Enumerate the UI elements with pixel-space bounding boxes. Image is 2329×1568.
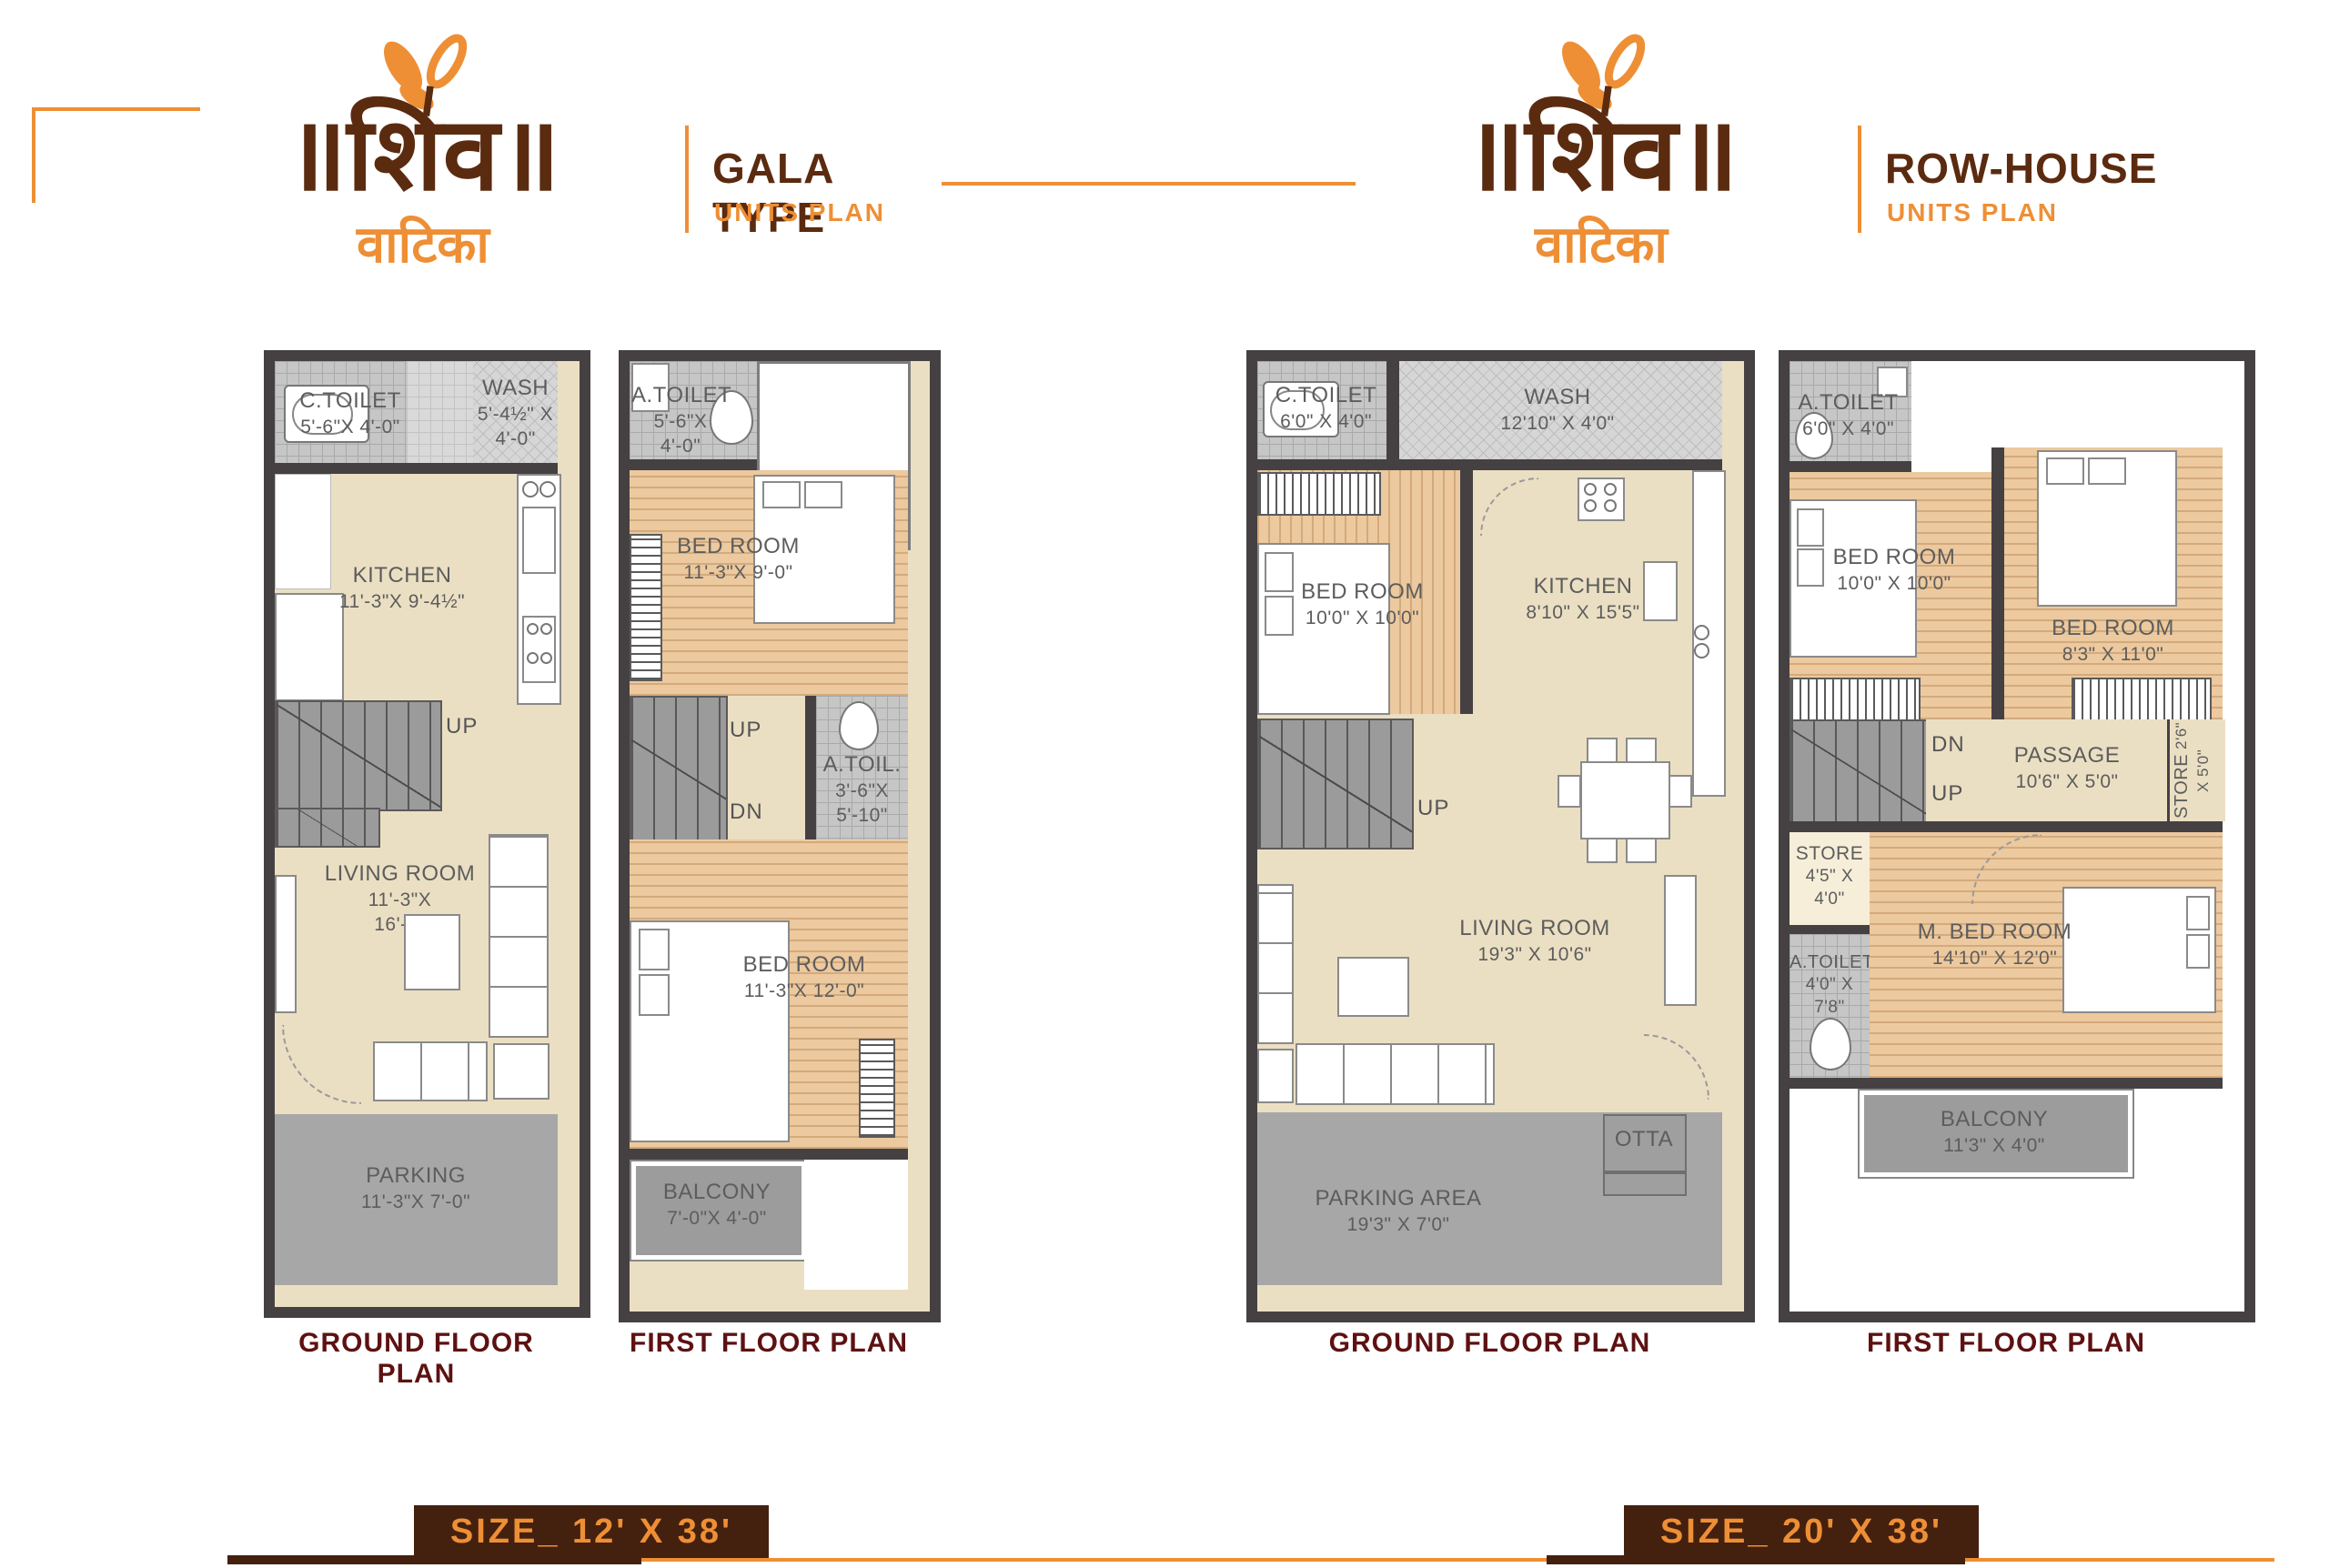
sofa xyxy=(1296,1043,1495,1105)
chair xyxy=(1587,838,1618,863)
chair xyxy=(1626,838,1657,863)
dining-table xyxy=(1580,761,1670,839)
bottom-rule-brown-right xyxy=(1547,1555,1965,1564)
sink-icon xyxy=(539,481,556,498)
burner-icon xyxy=(527,652,539,664)
room-label-m-bedroom: M. BED ROOM 14'10" X 12'0" xyxy=(1897,918,2092,970)
room-label-wash: WASH 12'10" X 4'0" xyxy=(1448,383,1667,436)
room-label-a-toilet: A.TOILET 5'-6"X 4'-0" xyxy=(631,381,730,459)
pillow xyxy=(2046,457,2084,485)
wall xyxy=(630,459,757,470)
wall xyxy=(1790,821,2223,832)
pillow xyxy=(2186,896,2210,930)
rowhouse-ground-caption: GROUND FLOOR PLAN xyxy=(1246,1328,1733,1359)
room-label-bedroom1: BED ROOM 10'0" X 10'0" xyxy=(1808,543,1981,596)
sink-icon xyxy=(522,481,539,498)
wardrobe xyxy=(1790,678,1921,721)
pillow xyxy=(639,974,670,1016)
toilet-icon xyxy=(1810,1018,1851,1070)
chair xyxy=(1558,775,1581,808)
header-divider xyxy=(685,126,689,233)
sofa xyxy=(373,1041,488,1101)
pillow xyxy=(639,929,670,970)
room-label-store: STORE 4'5" X 4'0" xyxy=(1790,841,1870,911)
room-label-bedroom: BED ROOM 10'0" X 10'0" xyxy=(1274,578,1451,630)
room-label-parking: PARKING 11'-3"X 7'-0" xyxy=(316,1161,516,1214)
room-label-a-toilet2: A.TOILET 4'0" X 7'8" xyxy=(1790,950,1870,1019)
corner-bracket-horizontal xyxy=(32,107,200,111)
burner-icon xyxy=(1604,499,1617,512)
rowhouse-first-floor-plan: A.TOILET 6'0" X 4'0" BED ROOM 10'0" X 10… xyxy=(1779,350,2255,1322)
sink-icon xyxy=(1694,643,1709,658)
room-label-balcony: BALCONY 7'-0"X 4'-0" xyxy=(637,1178,797,1231)
gala-first-caption: FIRST FLOOR PLAN xyxy=(619,1328,919,1359)
wall xyxy=(1991,447,2004,719)
burner-icon xyxy=(540,623,552,635)
header-divider xyxy=(1858,126,1861,233)
wall xyxy=(275,463,558,474)
rowhouse-title: ROW-HOUSE xyxy=(1885,144,2157,193)
pillow xyxy=(762,481,801,508)
wall xyxy=(1790,461,1911,472)
room-label-bedroom2: BED ROOM 8'3" X 11'0" xyxy=(2015,614,2211,667)
pillow xyxy=(2088,457,2126,485)
staircase xyxy=(1257,719,1414,849)
stairs-up-label: UP xyxy=(730,718,761,743)
chair xyxy=(1587,738,1618,763)
sofa xyxy=(489,834,549,1038)
size-badge-gala: SIZE_ 12' X 38' xyxy=(414,1505,769,1558)
room-label-store-vertical: STORE 2'6" X 5'0" xyxy=(2170,721,2220,819)
armchair xyxy=(1337,957,1409,1017)
room-label-a-toil: A.TOIL. 3'-6"X 5'-10" xyxy=(817,750,907,829)
bottom-rule-brown-left xyxy=(227,1555,641,1564)
staircase xyxy=(1790,719,1930,825)
burner-icon xyxy=(527,623,539,635)
sink-icon xyxy=(1694,625,1709,640)
burner-icon xyxy=(1584,483,1597,496)
pillow xyxy=(804,481,842,508)
brand-logo-text: ॥शिव॥ xyxy=(273,105,573,206)
pillow xyxy=(1797,508,1824,547)
wall xyxy=(1386,361,1399,459)
rowhouse-subtitle: UNITS PLAN xyxy=(1887,198,2058,227)
rowhouse-first-caption: FIRST FLOOR PLAN xyxy=(1779,1328,2233,1359)
wall xyxy=(1790,925,1870,934)
wardrobe xyxy=(859,1039,895,1138)
wall xyxy=(630,1149,908,1160)
rowhouse-ground-floor-plan: C.TOILET 6'0" X 4'0" WASH 12'10" X 4'0" … xyxy=(1246,350,1755,1322)
otta-label: OTTA xyxy=(1612,1125,1676,1153)
burner-icon xyxy=(1584,499,1597,512)
gala-header: ॥शिव॥ वाटिका GALA TYPE UNITS PLAN xyxy=(273,18,910,291)
armchair xyxy=(404,914,460,990)
side-table xyxy=(493,1043,549,1100)
size-badge-rowhouse: SIZE_ 20' X 38' xyxy=(1624,1505,1979,1558)
room-label-kitchen: KITCHEN 8'10" X 15'5" xyxy=(1492,572,1674,625)
chair xyxy=(1669,775,1692,808)
brand-logo-subtext: वाटिका xyxy=(273,220,573,271)
toilet-icon xyxy=(839,701,879,750)
gala-ground-floor-plan: C.TOILET 5'-6"X 4'-0" WASH 5'-4½" X 4'-0… xyxy=(264,350,590,1318)
burner-icon xyxy=(1604,483,1617,496)
wardrobe xyxy=(1257,472,1381,516)
corner-bracket-vertical xyxy=(32,107,35,203)
room-label-parking: PARKING AREA 19'3" X 7'0" xyxy=(1289,1184,1507,1237)
tv-unit xyxy=(275,875,297,1013)
brand-logo-subtext: वाटिका xyxy=(1451,220,1751,271)
room-label-living: LIVING ROOM 11'-3"X 16'-6" xyxy=(297,859,502,938)
room-label-passage: PASSAGE 10'6" X 5'0" xyxy=(1981,741,2153,794)
room-label-a-toilet: A.TOILET 6'0" X 4'0" xyxy=(1791,388,1905,441)
pillow xyxy=(2186,934,2210,969)
wall xyxy=(1257,459,1722,470)
stove-icon xyxy=(1578,477,1625,521)
stairs-dn-label: DN xyxy=(1931,732,1965,758)
showcase xyxy=(1664,875,1697,1006)
room-label-balcony: BALCONY 11'3" X 4'0" xyxy=(1876,1105,2112,1158)
chair xyxy=(1626,738,1657,763)
gala-subtitle: UNITS PLAN xyxy=(714,198,885,227)
room-label-kitchen: KITCHEN 11'-3"X 9'-4½" xyxy=(307,561,498,614)
wall xyxy=(805,696,816,839)
room-label-wash: WASH 5'-4½" X 4'-0" xyxy=(471,374,560,452)
open-area xyxy=(804,1160,908,1290)
wall xyxy=(1460,470,1473,714)
gala-first-floor-plan: A.TOILET 5'-6"X 4'-0" BED ROOM 11'-3"X 9… xyxy=(619,350,941,1322)
room-label-bedroom2: BED ROOM 11'-3"X 12'-0" xyxy=(713,950,895,1003)
room-label-living: LIVING ROOM 19'3" X 10'6" xyxy=(1426,914,1644,967)
stairs-dn-label: DN xyxy=(730,799,763,825)
side-table xyxy=(1257,1049,1294,1103)
fridge-icon xyxy=(522,507,556,574)
room-label-c-toilet: C.TOILET 6'0" X 4'0" xyxy=(1265,381,1387,434)
door-arc xyxy=(1480,477,1538,536)
sofa xyxy=(1257,884,1294,1044)
brand-logo-text: ॥शिव॥ xyxy=(1451,105,1751,206)
gala-ground-caption: GROUND FLOOR PLAN xyxy=(264,1328,569,1390)
room-label-c-toilet: C.TOILET 5'-6"X 4'-0" xyxy=(282,387,418,439)
rowhouse-header: ॥शिव॥ वाटिका ROW-HOUSE UNITS PLAN xyxy=(1447,18,2220,291)
stairs-up-label: UP xyxy=(1931,781,1963,807)
door-arc xyxy=(1644,1034,1709,1100)
staircase xyxy=(630,696,728,843)
section-divider-line xyxy=(942,182,1356,186)
brochure-page: ॥शिव॥ वाटिका GALA TYPE UNITS PLAN ॥शिव॥ … xyxy=(0,0,2329,1568)
burner-icon xyxy=(540,652,552,664)
stairs-up-label: UP xyxy=(1417,796,1449,821)
staircase-lower xyxy=(275,808,380,848)
door-arc xyxy=(282,1025,361,1104)
stairs-up-label: UP xyxy=(446,714,478,739)
otta-step xyxy=(1603,1172,1687,1196)
staircase xyxy=(275,700,442,811)
wall xyxy=(1790,1078,2223,1089)
room-label-bedroom1: BED ROOM 11'-3"X 9'-0" xyxy=(650,532,827,585)
wardrobe xyxy=(2072,678,2212,721)
